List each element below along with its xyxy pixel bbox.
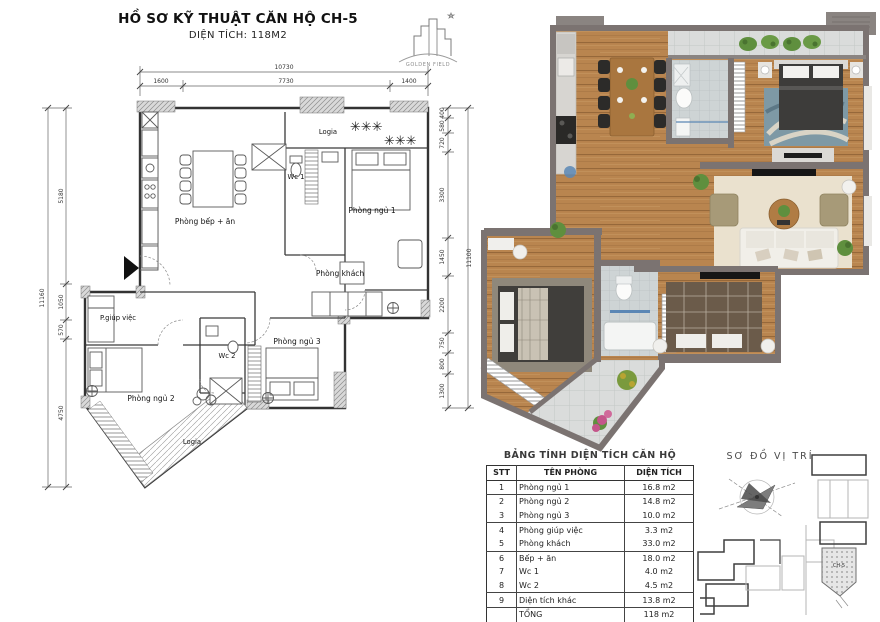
svg-text:1450: 1450 <box>439 249 446 264</box>
dimension-right: 400 580 720 3300 1450 2200 750 800 1300 … <box>439 105 474 411</box>
location-diagram: CH-5 <box>698 455 868 615</box>
svg-text:11100: 11100 <box>466 248 473 267</box>
room-label-bedroom1: Phòng ngủ 1 <box>348 206 395 215</box>
dimension-top: 10730 1600 7730 1400 <box>137 64 431 96</box>
floor-plan-canvas: GOLDEN FIELD <box>0 0 880 622</box>
dining-set-render <box>598 58 666 136</box>
svg-text:1400: 1400 <box>401 78 416 85</box>
table-row: 7 Wc 1 4.0 m2 <box>487 565 694 579</box>
room-label-bedroom3: Phòng ngủ 3 <box>273 337 320 346</box>
col-stt: STT <box>487 466 517 481</box>
table-row: 1 Phòng ngủ 1 16.8 m2 <box>487 480 694 495</box>
table-row: 9 Diện tích khác 13.8 m2 <box>487 593 694 608</box>
entrance-arrow-icon <box>124 256 139 280</box>
title-block: HỒ SƠ KỸ THUẬT CĂN HỘ CH-5 DIỆN TÍCH: 11… <box>116 11 360 41</box>
render-floor-plan <box>481 12 876 448</box>
bedroom3-furniture <box>653 272 775 353</box>
table-row: 2 Phòng ngủ 2 14.8 m2 <box>487 495 694 509</box>
table-row: 4 Phòng giúp việc 3.3 m2 <box>487 523 694 537</box>
room-label-living: Phòng khách <box>316 269 365 278</box>
highlighted-unit <box>822 548 856 596</box>
svg-text:11160: 11160 <box>39 288 46 307</box>
svg-text:3300: 3300 <box>439 187 446 202</box>
dimension-left: 11160 5180 1050 570 4750 <box>39 105 72 490</box>
svg-text:1300: 1300 <box>439 383 446 398</box>
room-label-logia-bottom: Logia <box>183 438 201 446</box>
star-icon <box>448 13 454 18</box>
svg-text:570: 570 <box>58 324 65 336</box>
table-row-total: TỔNG 118 m2 <box>487 607 694 622</box>
golden-field-logo: GOLDEN FIELD <box>399 13 457 68</box>
col-ten-phong: TÊN PHÒNG <box>517 466 625 481</box>
svg-text:580: 580 <box>439 120 446 132</box>
technical-floor-plan: ✳✳✳ ✳✳✳ Phòng bếp + ăn Wc 1 Phòng ngủ 1 … <box>39 64 474 490</box>
unit-label: CH-5 <box>833 563 845 569</box>
kitchen-counter <box>556 32 576 178</box>
svg-text:10730: 10730 <box>274 64 293 71</box>
compass-icon <box>719 479 795 517</box>
location-title: SƠ ĐỒ VỊ TRÍ <box>700 451 840 462</box>
svg-text:5180: 5180 <box>58 188 65 203</box>
area-table-section: BẢNG TÍNH DIỆN TÍCH CĂN HỘ STT TÊN PHÒNG… <box>486 450 694 622</box>
svg-text:400: 400 <box>439 107 446 119</box>
svg-text:750: 750 <box>439 337 446 349</box>
area-table-title: BẢNG TÍNH DIỆN TÍCH CĂN HỘ <box>486 450 694 461</box>
area-table: STT TÊN PHÒNG DIỆN TÍCH 1 Phòng ngủ 1 16… <box>486 465 694 622</box>
table-row: 3 Phòng ngủ 3 10.0 m2 <box>487 509 694 523</box>
room-label-bedroom2: Phòng ngủ 2 <box>127 394 174 403</box>
svg-text:720: 720 <box>439 137 446 149</box>
svg-text:7730: 7730 <box>278 78 293 85</box>
kitchen-fixtures <box>140 112 158 270</box>
svg-text:4750: 4750 <box>58 405 65 420</box>
table-header-row: STT TÊN PHÒNG DIỆN TÍCH <box>487 466 694 481</box>
svg-text:1600: 1600 <box>153 78 168 85</box>
room-label-kitchen: Phòng bếp + ăn <box>175 217 236 226</box>
room-label-wc1: Wc 1 <box>288 173 305 181</box>
page-subtitle: DIỆN TÍCH: 118M2 <box>116 30 360 41</box>
svg-text:✳✳✳: ✳✳✳ <box>350 120 383 135</box>
room-label-maid: P.giúp việc <box>100 314 136 322</box>
table-row: 6 Bếp + ăn 18.0 m2 <box>487 551 694 565</box>
room-label-wc2: Wc 2 <box>219 352 236 360</box>
svg-text:1050: 1050 <box>58 294 65 309</box>
room-label-logia-top: Logia <box>319 128 337 136</box>
svg-text:✳✳✳: ✳✳✳ <box>384 134 417 149</box>
table-row: 8 Wc 2 4.5 m2 <box>487 579 694 593</box>
table-row: 5 Phòng khách 33.0 m2 <box>487 537 694 551</box>
svg-text:800: 800 <box>439 358 446 370</box>
col-dien-tich: DIỆN TÍCH <box>625 466 694 481</box>
floor-plan-sheet: GOLDEN FIELD <box>0 0 880 622</box>
svg-text:2200: 2200 <box>439 297 446 312</box>
page-title: HỒ SƠ KỸ THUẬT CĂN HỘ CH-5 <box>116 11 360 27</box>
